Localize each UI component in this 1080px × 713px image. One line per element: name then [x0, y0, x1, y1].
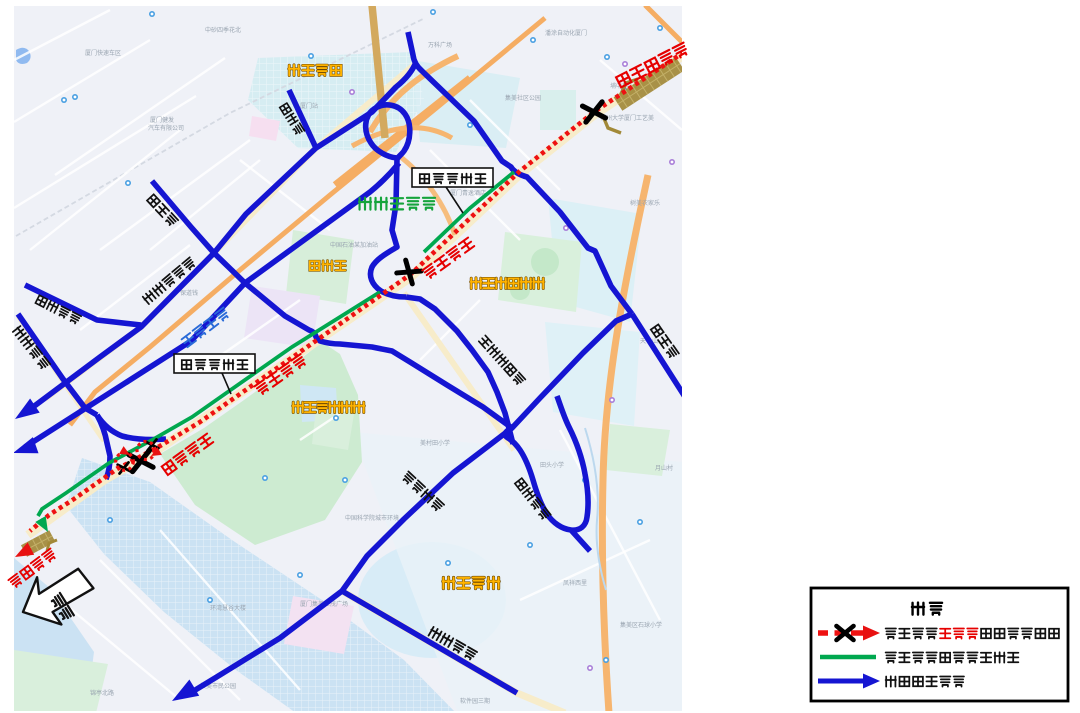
svg-text:凤祥西里: 凤祥西里: [563, 579, 587, 587]
svg-text:锦亭北路: 锦亭北路: [90, 689, 114, 697]
svg-text:保道钱: 保道钱: [180, 289, 198, 297]
svg-text:汽车有限公司: 汽车有限公司: [148, 124, 184, 132]
svg-text:田头小学: 田头小学: [540, 461, 564, 469]
svg-text:厦门青逸酒店: 厦门青逸酒店: [450, 189, 486, 197]
svg-text:树美农家乐: 树美农家乐: [630, 199, 660, 207]
svg-text:中国科学院城市环境: 中国科学院城市环境: [345, 514, 399, 522]
svg-text:厦门健发: 厦门健发: [150, 116, 174, 124]
svg-text:环湾慧谷大楼: 环湾慧谷大楼: [210, 604, 246, 612]
svg-text:美村田小学: 美村田小学: [420, 439, 450, 447]
svg-text:集美社区公园: 集美社区公园: [505, 94, 541, 102]
svg-text:月山村: 月山村: [655, 464, 673, 472]
svg-text:中砂四季花北: 中砂四季花北: [205, 26, 241, 34]
svg-text:软件园三期: 软件园三期: [460, 697, 490, 705]
svg-text:厦门站: 厦门站: [300, 102, 318, 110]
svg-text:厦门快速车区: 厦门快速车区: [85, 49, 121, 57]
svg-text:集美区石球小学: 集美区石球小学: [620, 621, 662, 629]
svg-text:潘涂自动化厦门: 潘涂自动化厦门: [545, 29, 587, 37]
svg-text:万科广场: 万科广场: [428, 41, 452, 49]
svg-text:福州大学厦门工艺美: 福州大学厦门工艺美: [600, 114, 654, 122]
svg-text:中国石油某加油站: 中国石油某加油站: [330, 241, 378, 249]
